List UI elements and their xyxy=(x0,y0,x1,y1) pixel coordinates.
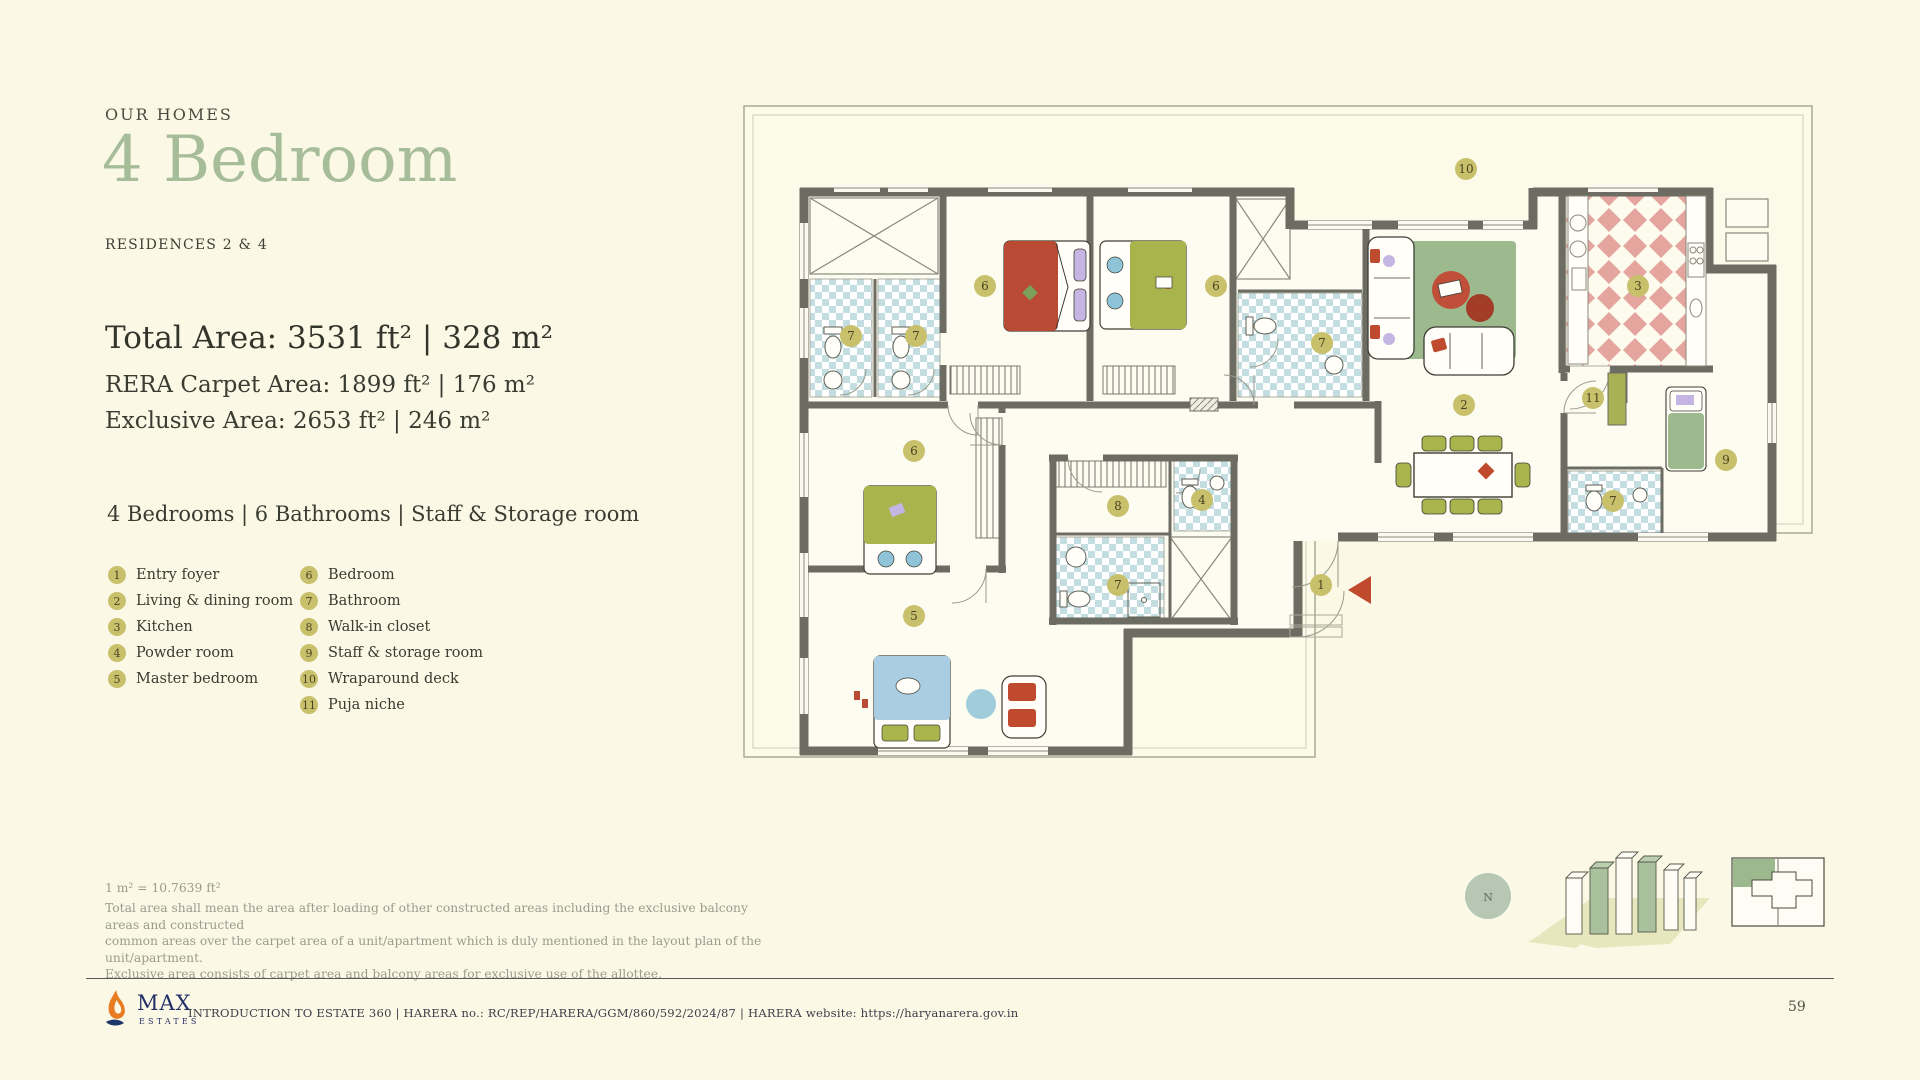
plan-room-badge: 4 xyxy=(1191,489,1213,511)
legend-item: 4Powder room xyxy=(108,644,300,662)
svg-text:5: 5 xyxy=(910,609,918,623)
legend: 1Entry foyer2Living & dining room3Kitche… xyxy=(108,566,483,722)
legend-number-badge: 2 xyxy=(108,592,126,610)
building-massing-icon xyxy=(1528,852,1710,948)
svg-text:N: N xyxy=(1483,891,1493,904)
plan-room-badge: 7 xyxy=(1602,490,1624,512)
legend-label: Bathroom xyxy=(328,593,401,609)
plan-room-badge: 1 xyxy=(1310,574,1332,596)
legend-item: 10Wraparound deck xyxy=(300,670,483,688)
legend-label: Kitchen xyxy=(136,619,193,635)
legend-item: 6Bedroom xyxy=(300,566,483,584)
svg-text:3: 3 xyxy=(1634,279,1642,293)
living-room-set xyxy=(1368,237,1516,375)
svg-text:4: 4 xyxy=(1198,493,1206,507)
legend-label: Powder room xyxy=(136,645,234,661)
disclaimer-line: common areas over the carpet area of a u… xyxy=(105,933,765,966)
legend-column-1: 1Entry foyer2Living & dining room3Kitche… xyxy=(108,566,300,722)
legend-item: 3Kitchen xyxy=(108,618,300,636)
puja-niche xyxy=(1608,373,1626,425)
svg-text:7: 7 xyxy=(1114,578,1122,592)
plan-room-badge: 9 xyxy=(1715,449,1737,471)
plan-room-badge: 11 xyxy=(1582,387,1604,409)
legend-number-badge: 9 xyxy=(300,644,318,662)
section-eyebrow: OUR HOMES xyxy=(105,105,233,124)
bed-red xyxy=(1004,241,1090,331)
disclaimer-line: Exclusive area consists of carpet area a… xyxy=(105,966,765,982)
legend-column-2: 6Bedroom7Bathroom8Walk-in closet9Staff &… xyxy=(300,566,483,722)
rera-carpet-area-line: RERA Carpet Area: 1899 ft² | 176 m² xyxy=(105,372,535,398)
page-subtitle: RESIDENCES 2 & 4 xyxy=(105,237,268,253)
svg-text:7: 7 xyxy=(1318,336,1326,350)
exclusive-area-line: Exclusive Area: 2653 ft² | 246 m² xyxy=(105,408,490,434)
key-plan-icon xyxy=(1732,858,1824,926)
svg-text:10: 10 xyxy=(1458,162,1473,176)
legend-item: 1Entry foyer xyxy=(108,566,300,584)
legend-item: 2Living & dining room xyxy=(108,592,300,610)
svg-text:8: 8 xyxy=(1114,499,1122,513)
amenities-line: 4 Bedrooms | 6 Bathrooms | Staff & Stora… xyxy=(107,502,639,526)
plan-room-badge: 6 xyxy=(1205,275,1227,297)
north-compass: N xyxy=(1465,873,1511,919)
armchair xyxy=(1002,676,1046,738)
disclaimer-line: Total area shall mean the area after loa… xyxy=(105,900,765,933)
footer-divider xyxy=(86,978,1834,979)
legend-item: 8Walk-in closet xyxy=(300,618,483,636)
svg-text:6: 6 xyxy=(910,444,918,458)
svg-text:11: 11 xyxy=(1585,391,1600,405)
plan-room-badge: 6 xyxy=(903,440,925,462)
svg-text:1: 1 xyxy=(1317,578,1325,592)
round-rug xyxy=(966,689,996,719)
plan-locator-graphics: N xyxy=(1440,838,1830,953)
legend-label: Walk-in closet xyxy=(328,619,430,635)
svg-text:2: 2 xyxy=(1460,398,1468,412)
legend-label: Entry foyer xyxy=(136,567,219,583)
plan-room-badge: 3 xyxy=(1627,275,1649,297)
page-number: 59 xyxy=(1788,999,1806,1015)
legend-number-badge: 4 xyxy=(108,644,126,662)
legend-number-badge: 1 xyxy=(108,566,126,584)
legend-label: Bedroom xyxy=(328,567,395,583)
page-title: 4 Bedroom xyxy=(102,128,457,192)
total-area-line: Total Area: 3531 ft² | 328 m² xyxy=(105,320,553,356)
hatched-wall-segment xyxy=(1190,398,1218,411)
legend-number-badge: 10 xyxy=(300,670,318,688)
svg-text:7: 7 xyxy=(912,329,920,343)
floor-plan: 1234566677777891011 xyxy=(738,103,1820,765)
plan-room-badge: 7 xyxy=(1107,574,1129,596)
legend-number-badge: 8 xyxy=(300,618,318,636)
legend-item: 11Puja niche xyxy=(300,696,483,714)
plan-room-badge: 7 xyxy=(905,325,927,347)
legend-label: Staff & storage room xyxy=(328,645,483,661)
legend-item: 7Bathroom xyxy=(300,592,483,610)
svg-text:6: 6 xyxy=(1212,279,1220,293)
plan-room-badge: 5 xyxy=(903,605,925,627)
disclaimer: 1 m² = 10.7639 ft² Total area shall mean… xyxy=(105,880,765,982)
bed-staff xyxy=(1666,387,1706,471)
legend-label: Master bedroom xyxy=(136,671,258,687)
svg-text:9: 9 xyxy=(1722,453,1730,467)
legend-number-badge: 11 xyxy=(300,696,318,714)
legend-label: Puja niche xyxy=(328,697,405,713)
plan-room-badge: 7 xyxy=(1311,332,1333,354)
legend-label: Living & dining room xyxy=(136,593,293,609)
legend-number-badge: 7 xyxy=(300,592,318,610)
legend-label: Wraparound deck xyxy=(328,671,459,687)
svg-text:7: 7 xyxy=(847,329,855,343)
conversion-note: 1 m² = 10.7639 ft² xyxy=(105,880,765,896)
logo-wordmark: MAX xyxy=(137,991,192,1015)
flame-icon xyxy=(106,990,125,1026)
legend-item: 5Master bedroom xyxy=(108,670,300,688)
plan-room-badge: 6 xyxy=(974,275,996,297)
svg-text:6: 6 xyxy=(981,279,989,293)
legend-number-badge: 3 xyxy=(108,618,126,636)
entry-arrow xyxy=(1348,576,1371,604)
bed-olive xyxy=(1100,241,1186,329)
legend-number-badge: 6 xyxy=(300,566,318,584)
bed-third xyxy=(864,486,936,574)
legend-item: 9Staff & storage room xyxy=(300,644,483,662)
plan-room-badge: 10 xyxy=(1455,158,1477,180)
footer-text: INTRODUCTION TO ESTATE 360 | HARERA no.:… xyxy=(188,1006,1018,1020)
svg-text:7: 7 xyxy=(1609,494,1617,508)
plan-room-badge: 8 xyxy=(1107,495,1129,517)
plan-room-badge: 7 xyxy=(840,325,862,347)
legend-number-badge: 5 xyxy=(108,670,126,688)
plan-room-badge: 2 xyxy=(1453,394,1475,416)
